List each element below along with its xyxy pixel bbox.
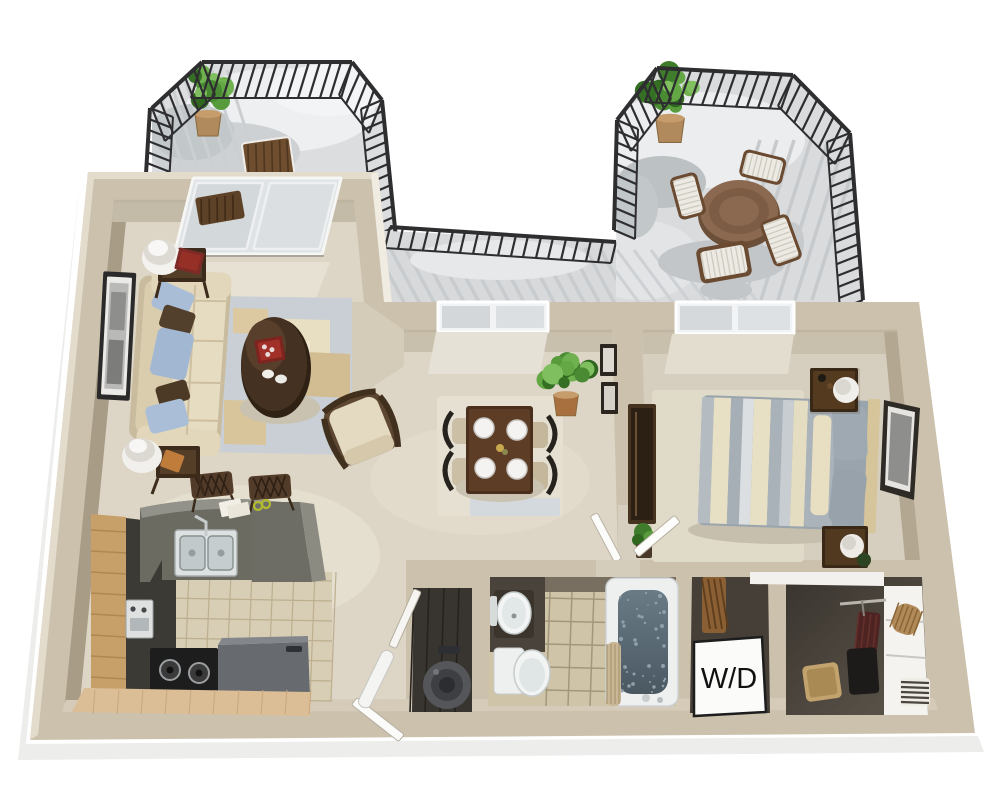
svg-text:W/D: W/D (701, 663, 757, 695)
